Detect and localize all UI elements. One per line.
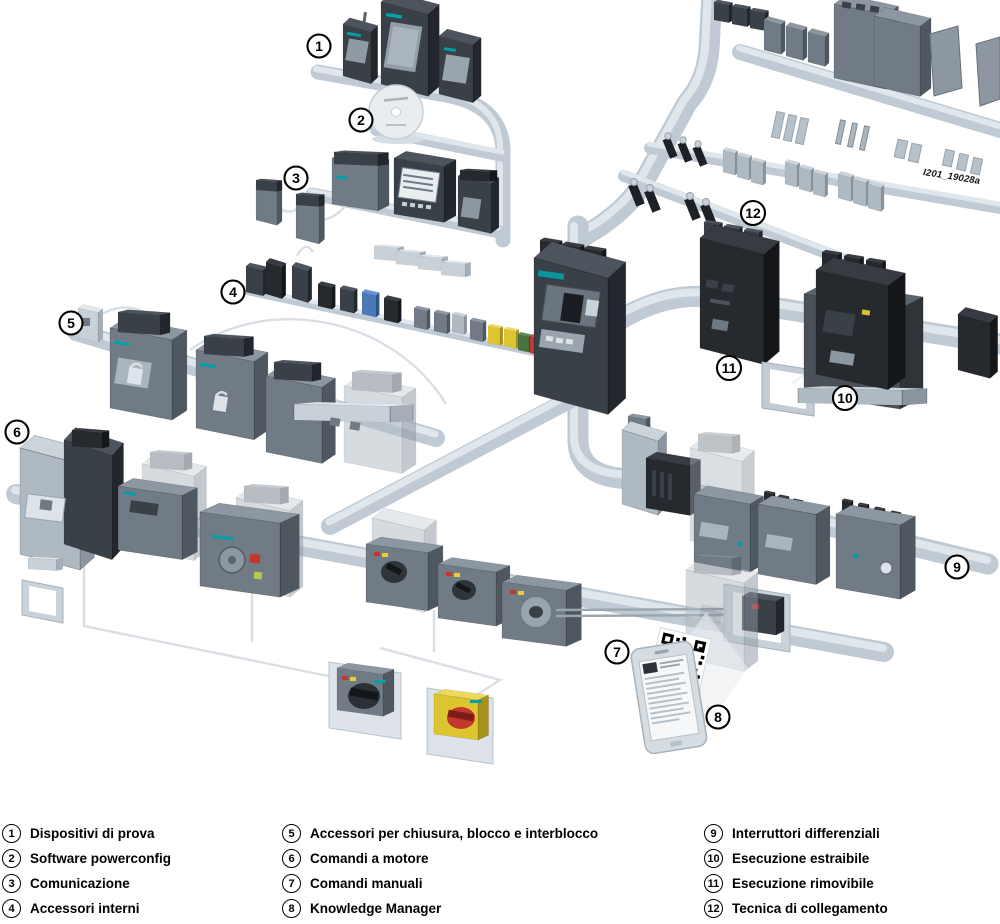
legend-item-9: 9 Interruttori differenziali: [704, 824, 888, 843]
indicator: [374, 552, 380, 556]
legend-item-12: 12 Tecnica di collegamento: [704, 899, 888, 918]
internal-accessory: [266, 258, 286, 299]
brand-stripe: [470, 700, 482, 703]
legend-number: 2: [2, 849, 21, 868]
indicator: [854, 554, 859, 559]
legend-item-11: 11 Esecuzione rimovibile: [704, 874, 888, 893]
callout-6: 6: [6, 421, 29, 444]
svg-text:9: 9: [953, 559, 961, 575]
legend-label: Tecnica di collegamento: [732, 901, 888, 916]
central-breaker-group: [534, 238, 626, 415]
indicator: [510, 590, 516, 594]
module-cap: [256, 179, 282, 192]
callout-2: 2: [350, 109, 373, 132]
legend-number: 9: [704, 824, 723, 843]
terminal-cover: [764, 16, 785, 54]
internal-accessory: [292, 262, 312, 303]
legend-item-6: 6 Comandi a motore: [282, 849, 598, 868]
internal-accessory: [362, 289, 379, 317]
svg-text:11: 11: [722, 360, 737, 376]
legend-column-2: 5 Accessori per chiusura, blocco e inter…: [282, 824, 598, 924]
interlock-detail: [349, 421, 360, 431]
end-plate: [958, 307, 998, 378]
indicator: [382, 553, 388, 557]
internal-accessory: [318, 281, 335, 309]
legend-number: 6: [282, 849, 301, 868]
stop-button: [249, 553, 260, 563]
internal-accessory: [414, 306, 430, 330]
legend-number: 7: [282, 874, 301, 893]
meter-display: [398, 168, 440, 203]
connector-slot: [668, 474, 672, 500]
legend-number: 4: [2, 899, 21, 918]
terminal-cover: [714, 0, 733, 23]
product-overview-diagram: 1 2 3 4 5 6 7 8 9 10 11 12 I201_19028a 1…: [0, 0, 1000, 924]
legend: 1 Dispositivi di prova 2 Software powerc…: [0, 820, 1000, 924]
svg-text:2: 2: [357, 112, 365, 128]
disc-hole: [392, 108, 401, 117]
meter-button: [410, 203, 416, 208]
callout-8: 8: [707, 706, 730, 729]
phase-barrier: [976, 37, 1000, 106]
indicator: [518, 591, 524, 595]
legend-label: Knowledge Manager: [310, 901, 441, 916]
legend-item-7: 7 Comandi manuali: [282, 874, 598, 893]
legend-label: Comandi manuali: [310, 876, 423, 891]
keypad-tile: [441, 260, 471, 277]
module-cap: [334, 151, 389, 166]
start-button: [253, 571, 262, 579]
meter-button: [418, 204, 424, 209]
legend-label: Comunicazione: [30, 876, 130, 891]
phase-barrier: [930, 26, 962, 96]
svg-text:5: 5: [67, 315, 75, 331]
test-button: [566, 339, 574, 345]
terminal-cluster: [274, 360, 321, 382]
indicator: [350, 677, 356, 681]
indicator: [446, 572, 452, 576]
coupling-shaft-end: [529, 606, 543, 618]
brand-stripe: [374, 680, 386, 683]
plug-in-breaker: [700, 225, 779, 365]
toggle-panel: [822, 310, 855, 336]
device-screen: [442, 54, 470, 83]
terminal-cover: [786, 22, 807, 60]
terminal-cover: [808, 28, 829, 66]
legend-column-1: 1 Dispositivi di prova 2 Software powerc…: [2, 824, 171, 924]
legend-item-1: 1 Dispositivi di prova: [2, 824, 171, 843]
internal-accessory: [384, 295, 401, 323]
legend-label: Esecuzione rimovibile: [732, 876, 874, 891]
rcd-module: [836, 505, 915, 599]
meter-button: [426, 205, 432, 210]
legend-item-10: 10 Esecuzione estraibile: [704, 849, 888, 868]
svg-text:6: 6: [13, 424, 21, 440]
internal-accessory: [504, 327, 519, 349]
callout-4: 4: [222, 281, 245, 304]
svg-text:12: 12: [745, 205, 761, 221]
legend-number: 1: [2, 824, 21, 843]
svg-text:8: 8: [714, 709, 722, 725]
legend-label: Dispositivi di prova: [30, 826, 155, 841]
terminal-cover: [732, 4, 751, 27]
label-sticker: [585, 299, 599, 317]
terminal-cluster: [118, 310, 170, 335]
terminal-cluster: [204, 334, 254, 357]
internal-accessory: [470, 318, 486, 342]
rcd-group: [622, 414, 915, 599]
legend-label: Software powerconfig: [30, 851, 171, 866]
callout-7: 7: [606, 641, 629, 664]
interlock-detail: [329, 417, 340, 427]
knowledge-manager-group: [630, 554, 758, 755]
motor-operator: [200, 503, 299, 597]
legend-label: Accessori per chiusura, blocco e interbl…: [310, 826, 598, 841]
meter-button: [402, 202, 408, 207]
legend-item-8: 8 Knowledge Manager: [282, 899, 598, 918]
internal-accessory: [518, 332, 532, 352]
callout-9: 9: [946, 556, 969, 579]
callout-10: 10: [833, 386, 857, 410]
toggle-handle: [560, 293, 584, 324]
padlock-accessory: [213, 395, 228, 412]
internal-accessory: [434, 310, 450, 334]
svg-text:3: 3: [292, 170, 300, 186]
connector-slot: [652, 470, 656, 496]
legend-item-2: 2 Software powerconfig: [2, 849, 171, 868]
legend-item-5: 5 Accessori per chiusura, blocco e inter…: [282, 824, 598, 843]
internal-accessory: [488, 324, 503, 346]
callout-3: 3: [285, 167, 308, 190]
module-panel: [461, 197, 482, 219]
legend-number: 11: [704, 874, 723, 893]
callout-1: 1: [308, 35, 331, 58]
legend-number: 12: [704, 899, 723, 918]
rcd-dial: [880, 562, 892, 574]
callout-11: 11: [717, 356, 741, 380]
motor-operator: [118, 478, 197, 559]
test-button: [556, 338, 564, 344]
mounting-plate: [28, 557, 63, 571]
connector-slot: [660, 472, 664, 498]
mounting-frame-cutout: [29, 586, 56, 616]
legend-number: 3: [2, 874, 21, 893]
module-cap: [72, 428, 109, 448]
indicator: [342, 676, 348, 680]
mechanism-knob: [39, 499, 52, 510]
diagram-canvas: 1 2 3 4 5 6 7 8 9 10 11 12: [0, 0, 1000, 820]
legend-label: Interruttori differenziali: [732, 826, 880, 841]
legend-number: 8: [282, 899, 301, 918]
module-cap: [296, 193, 325, 207]
module-cap: [460, 169, 497, 182]
internal-accessory: [340, 285, 357, 313]
callout-12: 12: [741, 201, 765, 225]
internal-accessory: [246, 263, 267, 296]
indicator: [738, 542, 743, 547]
device-screen: [345, 38, 369, 63]
locking-interlock-group: [78, 304, 446, 473]
callout-5: 5: [60, 312, 83, 335]
legend-item-4: 4 Accessori interni: [2, 899, 171, 918]
operator-dial-center: [228, 556, 236, 564]
legend-label: Comandi a motore: [310, 851, 429, 866]
legend-column-3: 9 Interruttori differenziali 10 Esecuzio…: [704, 824, 888, 924]
box-terminal-cover: [874, 8, 931, 97]
svg-text:1: 1: [315, 38, 323, 54]
svg-text:10: 10: [837, 390, 853, 406]
internal-accessory: [452, 312, 467, 335]
disc-label: [386, 124, 406, 126]
test-button: [546, 336, 554, 342]
padlock-accessory: [127, 367, 143, 385]
legend-label: Accessori interni: [30, 901, 140, 916]
interlock-module: [294, 402, 413, 422]
svg-text:7: 7: [613, 644, 621, 660]
legend-item-3: 3 Comunicazione: [2, 874, 171, 893]
svg-text:4: 4: [229, 284, 237, 300]
indicator: [454, 573, 460, 577]
legend-label: Esecuzione estraibile: [732, 851, 869, 866]
chassis-base: [798, 386, 927, 405]
legend-number: 5: [282, 824, 301, 843]
legend-number: 10: [704, 849, 723, 868]
molded-case-circuit-breaker: [534, 242, 626, 415]
